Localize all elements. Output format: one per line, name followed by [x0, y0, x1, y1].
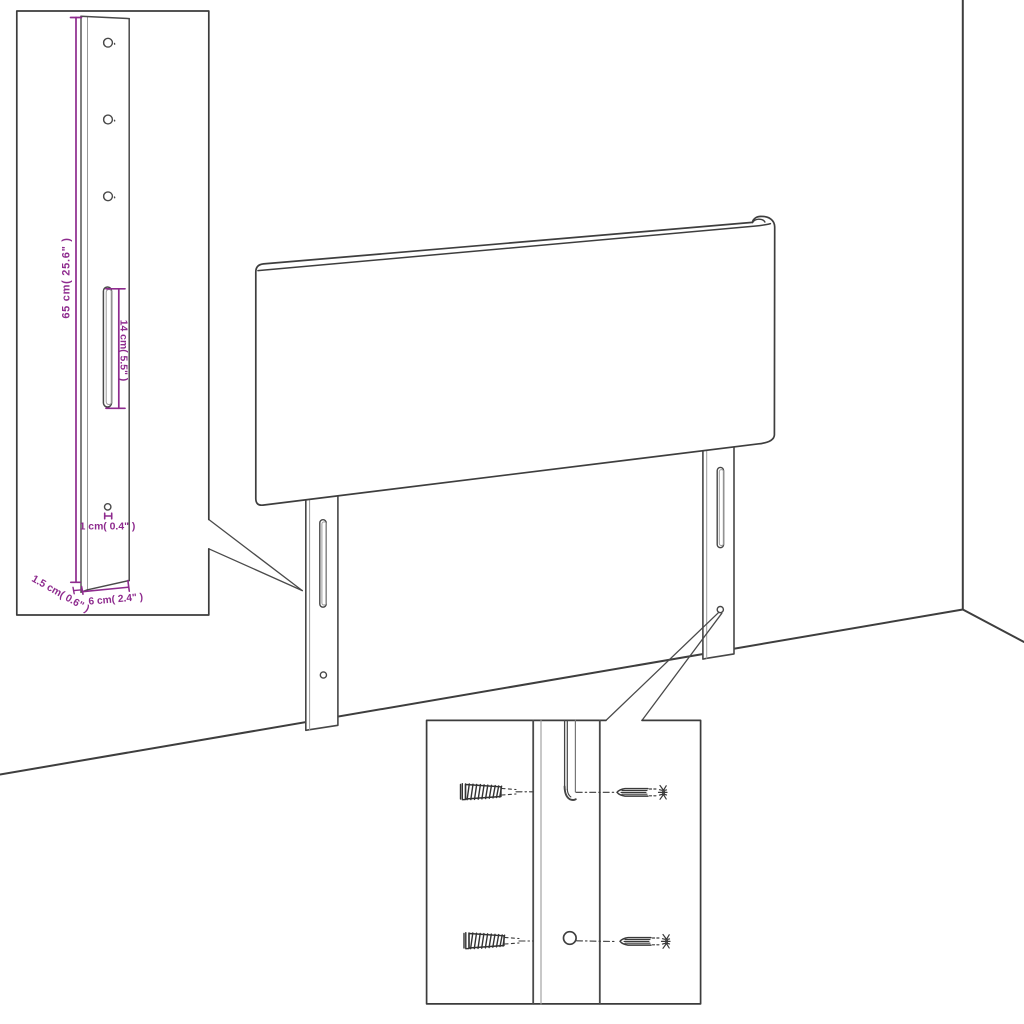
- svg-text:14 cm( 5.5" ): 14 cm( 5.5" ): [118, 320, 129, 382]
- svg-text:65 cm( 25.6" ): 65 cm( 25.6" ): [60, 237, 72, 318]
- svg-text:1 cm( 0.4" ): 1 cm( 0.4" ): [80, 521, 136, 532]
